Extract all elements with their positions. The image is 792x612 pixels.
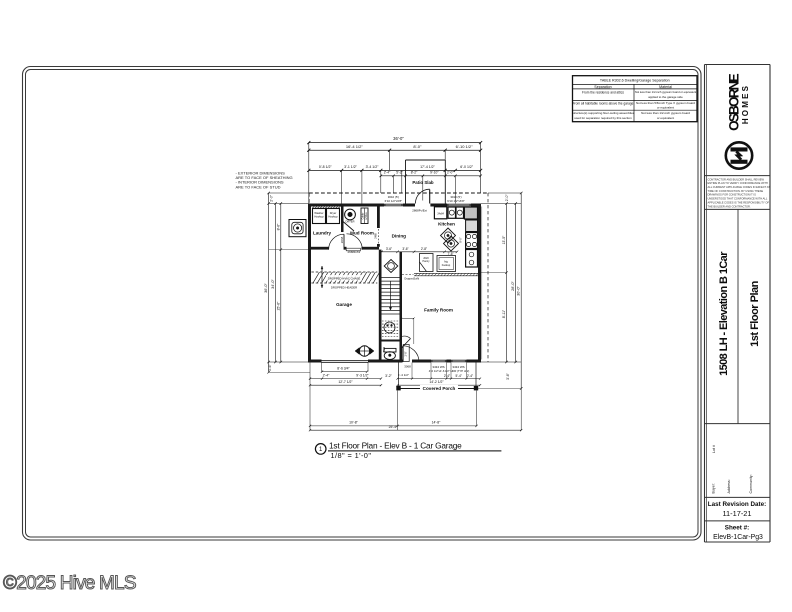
svg-text:DRYER: DRYER [345, 219, 354, 223]
svg-text:From the residence and attics: From the residence and attics [582, 91, 624, 95]
svg-text:0'-8 1/2": 0'-8 1/2" [319, 165, 333, 169]
svg-text:2'-0": 2'-0" [505, 194, 509, 202]
svg-text:1: 1 [319, 447, 323, 453]
svg-text:5'-2": 5'-2" [396, 171, 403, 175]
svg-text:Lot #: Lot # [712, 445, 716, 453]
svg-text:13'-5": 13'-5" [502, 235, 506, 244]
svg-text:3'-1 1/2": 3'-1 1/2" [344, 165, 358, 169]
svg-text:24x84: 24x84 [437, 213, 444, 216]
svg-text:Not less than 1/2-inch gypsum: Not less than 1/2-inch gypsum board [641, 111, 690, 115]
svg-text:17'-4 1/2": 17'-4 1/2" [420, 165, 436, 169]
svg-text:2'-4": 2'-4" [444, 374, 450, 378]
svg-text:Dryer: Dryer [330, 211, 337, 215]
svg-text:36'-0": 36'-0" [393, 136, 404, 141]
svg-text:1st Floor Plan - Elev B - 1 Ca: 1st Floor Plan - Elev B - 1 Car Garage [329, 441, 462, 451]
svg-text:3'-6": 3'-6" [268, 364, 272, 372]
svg-text:DRAWINGS FOR CONSTRUCTION IT I: DRAWINGS FOR CONSTRUCTION IT IS [708, 193, 757, 197]
svg-text:14'-8": 14'-8" [432, 421, 441, 425]
svg-text:DroppedSoffit: DroppedSoffit [405, 278, 420, 281]
svg-text:10'-8": 10'-8" [349, 421, 358, 425]
svg-text:2668Fr/Dr: 2668Fr/Dr [347, 250, 360, 254]
svg-text:Mud Room: Mud Room [350, 231, 374, 236]
svg-text:3434 WS: 3434 WS [452, 365, 464, 369]
svg-text:36'-0": 36'-0" [264, 283, 268, 293]
svg-text:Hookup: Hookup [328, 215, 338, 219]
svg-text:9'-10": 9'-10" [430, 171, 439, 175]
svg-text:w/Shoe: w/Shoe [366, 211, 368, 219]
svg-text:2'-0": 2'-0" [447, 171, 454, 175]
svg-text:2'-4": 2'-4" [384, 171, 391, 175]
svg-text:1'-4 1/2": 1'-4 1/2" [398, 373, 409, 377]
svg-text:Patio Slab: Patio Slab [412, 180, 434, 185]
svg-text:8'-0": 8'-0" [413, 144, 422, 149]
svg-text:Structure(s) supporting floor-: Structure(s) supporting floor-ceiling as… [572, 111, 635, 115]
svg-text:6'10 1/2"x6'8": 6'10 1/2"x6'8" [385, 199, 402, 203]
svg-text:UNDERSTOOD THAT CONFORMANCE WI: UNDERSTOOD THAT CONFORMANCE WITH ALL [708, 197, 768, 201]
svg-text:HOMES: HOMES [741, 84, 750, 124]
svg-text:DROPPED HEADER: DROPPED HEADER [331, 285, 357, 289]
svg-text:or equivalent: or equivalent [657, 106, 674, 110]
svg-text:applied to the garage side: applied to the garage side [648, 95, 683, 99]
svg-text:3'-4 1/2": 3'-4 1/2" [366, 165, 380, 169]
svg-text:1/8" = 1'-0": 1/8" = 1'-0" [331, 451, 372, 460]
svg-text:Hookup: Hookup [314, 215, 324, 219]
svg-text:3'-6": 3'-6" [386, 247, 392, 251]
svg-text:2'-8": 2'-8" [421, 247, 427, 251]
svg-text:2'-4": 2'-4" [467, 374, 473, 378]
svg-text:6'-0 1/2": 6'-0 1/2" [460, 165, 474, 169]
svg-text:14'-2 1/2": 14'-2 1/2" [429, 380, 444, 384]
svg-text:DROPPED HVAC CHASE: DROPPED HVAC CHASE [328, 277, 361, 281]
svg-text:25'-6": 25'-6" [277, 301, 281, 310]
svg-text:ENTIRE PLAN TO VERIFY CONFORMA: ENTIRE PLAN TO VERIFY CONFORMANCE WITH [708, 181, 768, 185]
svg-text:12'-7 1/2": 12'-7 1/2" [338, 380, 353, 384]
svg-text:1st Floor Plan: 1st Floor Plan [749, 280, 761, 347]
svg-text:7'-6": 7'-6" [447, 252, 453, 256]
svg-text:TABLE R302.6 Dwelling/Garage S: TABLE R302.6 Dwelling/Garage Separation [600, 78, 670, 82]
svg-text:Covered Porch: Covered Porch [423, 386, 456, 391]
svg-text:3068: 3068 [404, 365, 411, 369]
svg-text:Garage: Garage [336, 302, 352, 307]
svg-text:1508 LH - Elevation B 1Car: 1508 LH - Elevation B 1Car [718, 251, 730, 376]
svg-text:3'-2": 3'-2" [385, 374, 393, 378]
svg-text:APPLICABLE CODES IS THE RESPON: APPLICABLE CODES IS THE RESPONSIBILITY O… [708, 200, 770, 204]
svg-text:Cubby: Cubby [362, 212, 364, 219]
svg-text:Community:: Community: [749, 474, 753, 493]
svg-text:THE BUILDER AND CONTRACTOR.: THE BUILDER AND CONTRACTOR. [708, 204, 751, 208]
svg-text:8'-2": 8'-2" [411, 171, 418, 175]
svg-text:30'-0": 30'-0" [517, 286, 521, 296]
svg-text:Washer: Washer [314, 211, 323, 215]
svg-text:2'-4": 2'-4" [323, 374, 331, 378]
svg-text:Pantry: Pantry [423, 260, 431, 263]
svg-text:25'-4": 25'-4" [389, 425, 398, 429]
svg-text:16'-4 1/2": 16'-4 1/2" [346, 144, 363, 149]
svg-text:Pwd: Pwd [382, 346, 386, 352]
svg-text:ARE TO FACE OF STUD: ARE TO FACE OF STUD [236, 184, 281, 189]
svg-text:2'-0": 2'-0" [269, 194, 273, 202]
svg-text:2'-8": 2'-8" [404, 351, 407, 356]
svg-text:frig: frig [444, 260, 448, 264]
svg-text:Sheet #:: Sheet #: [725, 525, 750, 532]
svg-text:Address:: Address: [727, 479, 731, 493]
svg-text:hookup: hookup [442, 263, 451, 267]
svg-text:Separation: Separation [594, 85, 611, 89]
svg-text:Kitchen: Kitchen [438, 222, 455, 227]
svg-text:Dining: Dining [392, 233, 406, 238]
svg-text:6'-10 1/2": 6'-10 1/2" [456, 144, 473, 149]
svg-text:Family Room: Family Room [424, 308, 453, 313]
svg-text:8'-6 3/4": 8'-6 3/4" [337, 366, 350, 370]
svg-text:CONTRACTOR AND BUILDER SHALL R: CONTRACTOR AND BUILDER SHALL REVIEW [708, 177, 765, 181]
svg-text:used for separation required b: used for separation required by this sec… [574, 116, 632, 120]
svg-text:4'-0 1/2"x4'-6 1/2" HDR (TYP o: 4'-0 1/2"x4'-6 1/2" HDR (TYP of 2) [429, 369, 470, 373]
svg-text:8'-6": 8'-6" [277, 223, 281, 231]
svg-text:From all habitable rooms above: From all habitable rooms above the garag… [573, 102, 634, 106]
svg-text:3434 WS: 3434 WS [432, 365, 444, 369]
svg-text:Material: Material [659, 85, 672, 89]
svg-text:2868Fv/Ext: 2868Fv/Ext [412, 208, 427, 212]
svg-text:Buyer:: Buyer: [712, 483, 716, 493]
svg-text:11-17-21: 11-17-21 [722, 509, 751, 518]
svg-text:Laundry: Laundry [313, 231, 332, 236]
svg-text:Not less than 1/2-inch gypsum: Not less than 1/2-inch gypsum board or e… [635, 90, 697, 94]
svg-text:Not less than 5/8-inch Type X: Not less than 5/8-inch Type X gypsum boa… [636, 101, 695, 105]
svg-text:28'-0": 28'-0" [511, 281, 515, 291]
svg-text:3'-6": 3'-6" [506, 372, 510, 380]
svg-text:5'-4": 5'-4" [456, 374, 462, 378]
svg-text:ElevB-1Car-Pg3: ElevB-1Car-Pg3 [713, 534, 763, 541]
svg-text:34'-0": 34'-0" [271, 279, 275, 289]
svg-text:8'-11": 8'-11" [502, 309, 506, 318]
svg-text:OSBORNE: OSBORNE [727, 73, 742, 130]
svg-text:TIME OF CONSTRUCTION. BY USIN: TIME OF CONSTRUCTION. BY USING THESE [708, 189, 764, 193]
svg-text:Last Revision Date:: Last Revision Date: [708, 501, 766, 508]
svg-text:2468: 2468 [375, 233, 378, 239]
svg-text:9'-0": 9'-0" [459, 237, 463, 243]
svg-text:ALL CURRENT APPLICABLE CODES I: ALL CURRENT APPLICABLE CODES IN EFFECT A… [708, 185, 771, 189]
svg-text:2068: 2068 [340, 236, 344, 243]
svg-text:9'-3 1/2": 9'-3 1/2" [356, 374, 369, 378]
svg-text:3'-6": 3'-6" [402, 247, 408, 251]
svg-text:6'10 1/2"x6'8": 6'10 1/2"x6'8" [447, 199, 464, 203]
svg-text:or equivalent: or equivalent [657, 116, 674, 120]
